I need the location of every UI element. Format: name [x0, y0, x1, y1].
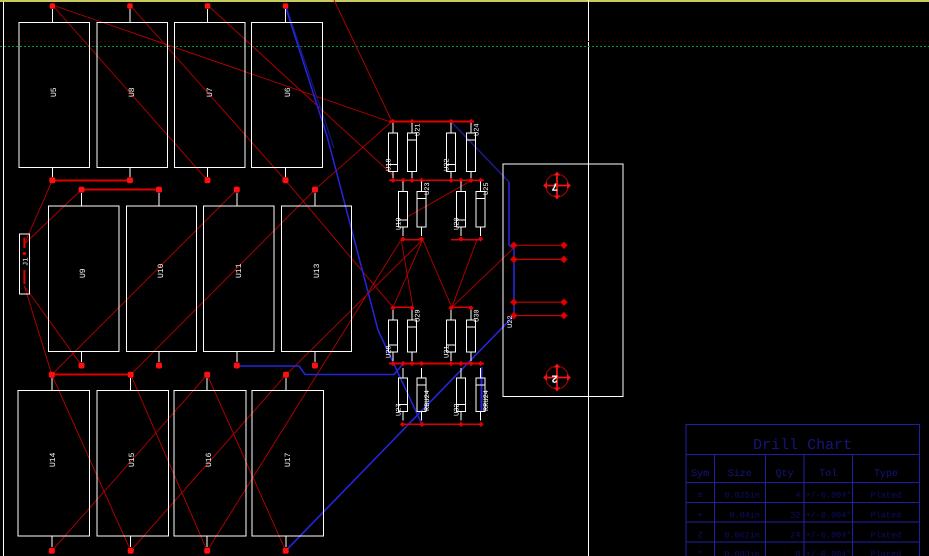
svg-text:Size: Size: [728, 468, 752, 480]
svg-text:7: 7: [551, 180, 558, 192]
svg-text:Plated: Plated: [871, 550, 902, 556]
svg-text:Plated: Plated: [871, 531, 902, 541]
svg-text:RRU24: RRU24: [483, 390, 491, 411]
svg-text:Plated: Plated: [871, 491, 902, 501]
svg-text:U15: U15: [128, 452, 137, 467]
svg-text:J1: J1: [23, 258, 31, 266]
svg-text:Type: Type: [874, 469, 898, 480]
svg-text:Sym: Sym: [691, 469, 709, 480]
svg-text:U19: U19: [396, 217, 404, 230]
svg-text:+/-0.004": +/-0.004": [806, 511, 852, 521]
svg-text:Tol: Tol: [819, 468, 837, 480]
svg-text:RBU24: RBU24: [424, 390, 432, 411]
svg-text:Z: Z: [698, 531, 703, 541]
svg-text:24: 24: [790, 531, 800, 541]
svg-text:U8: U8: [128, 87, 137, 97]
svg-text:U29: U29: [415, 309, 423, 322]
svg-text:U23: U23: [424, 182, 432, 195]
svg-text:≡: ≡: [698, 491, 703, 501]
svg-text:Drill Chart: Drill Chart: [753, 437, 852, 454]
svg-text:U22: U22: [444, 158, 452, 171]
svg-text:U22: U22: [507, 315, 515, 328]
svg-text:Plated: Plated: [871, 511, 902, 521]
svg-text:8: 8: [795, 550, 800, 556]
svg-text:4: 4: [795, 491, 800, 501]
svg-text:+: +: [698, 511, 703, 521]
svg-text:0.093in: 0.093in: [724, 550, 760, 556]
svg-text:U9: U9: [79, 268, 88, 278]
svg-text:U25: U25: [483, 182, 491, 195]
svg-text:U13: U13: [313, 263, 322, 278]
svg-text:U5: U5: [50, 87, 59, 97]
svg-text:0.04in: 0.04in: [729, 511, 760, 521]
svg-text:U16: U16: [205, 452, 214, 467]
svg-text:U28: U28: [386, 345, 394, 358]
svg-text:*: *: [698, 550, 703, 556]
svg-text:U10: U10: [157, 263, 166, 278]
svg-text:+/-0.004": +/-0.004": [806, 491, 852, 501]
svg-text:U14: U14: [49, 452, 58, 467]
svg-text:U21: U21: [415, 123, 423, 136]
svg-text:0.062in: 0.062in: [724, 531, 760, 541]
svg-text:U24: U24: [474, 123, 482, 136]
svg-text:U27: U27: [396, 403, 404, 416]
svg-text:U17: U17: [284, 452, 293, 467]
svg-text:U7: U7: [206, 87, 215, 97]
svg-text:32: 32: [790, 511, 800, 521]
svg-text:Qty: Qty: [776, 469, 794, 480]
svg-text:U32: U32: [454, 403, 462, 416]
svg-text:2: 2: [551, 372, 558, 384]
svg-text:+/-0.004": +/-0.004": [806, 550, 852, 556]
svg-text:U30: U30: [474, 309, 482, 322]
svg-text:0.025in: 0.025in: [724, 491, 760, 501]
svg-text:U18: U18: [386, 158, 394, 171]
svg-text:U20: U20: [454, 217, 462, 230]
svg-text:U11: U11: [235, 263, 244, 278]
svg-text:+/-0.004": +/-0.004": [806, 531, 852, 541]
svg-text:U6: U6: [284, 87, 293, 97]
svg-text:U31: U31: [444, 345, 452, 358]
